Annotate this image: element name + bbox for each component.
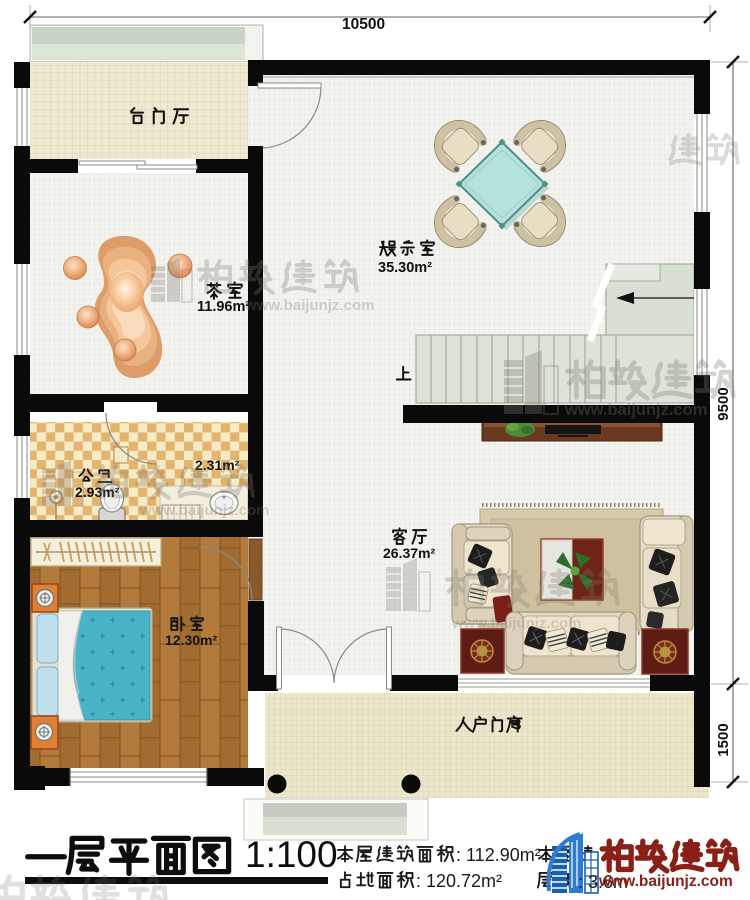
svg-text:1500: 1500 — [715, 723, 732, 756]
svg-text:www.baijunjz.com: www.baijunjz.com — [451, 615, 581, 632]
svg-text:www.baijunjz.com: www.baijunjz.com — [244, 297, 374, 314]
svg-text:: 112.90m²: : 112.90m² — [456, 845, 541, 865]
svg-text:www.baijunjz.com: www.baijunjz.com — [598, 873, 733, 890]
svg-text:26.37m²: 26.37m² — [383, 545, 435, 561]
svg-text:www.baijunjz.com: www.baijunjz.com — [564, 401, 707, 419]
svg-text:10500: 10500 — [342, 16, 385, 33]
svg-text:12.30m²: 12.30m² — [165, 632, 217, 648]
svg-text:11.96m²: 11.96m² — [197, 299, 250, 315]
svg-text:: 120.72m²: : 120.72m² — [416, 871, 502, 891]
svg-text:www.baijunjz.com: www.baijunjz.com — [139, 502, 269, 519]
svg-text:35.30m²: 35.30m² — [378, 260, 432, 276]
svg-text:1:100: 1:100 — [245, 834, 338, 875]
